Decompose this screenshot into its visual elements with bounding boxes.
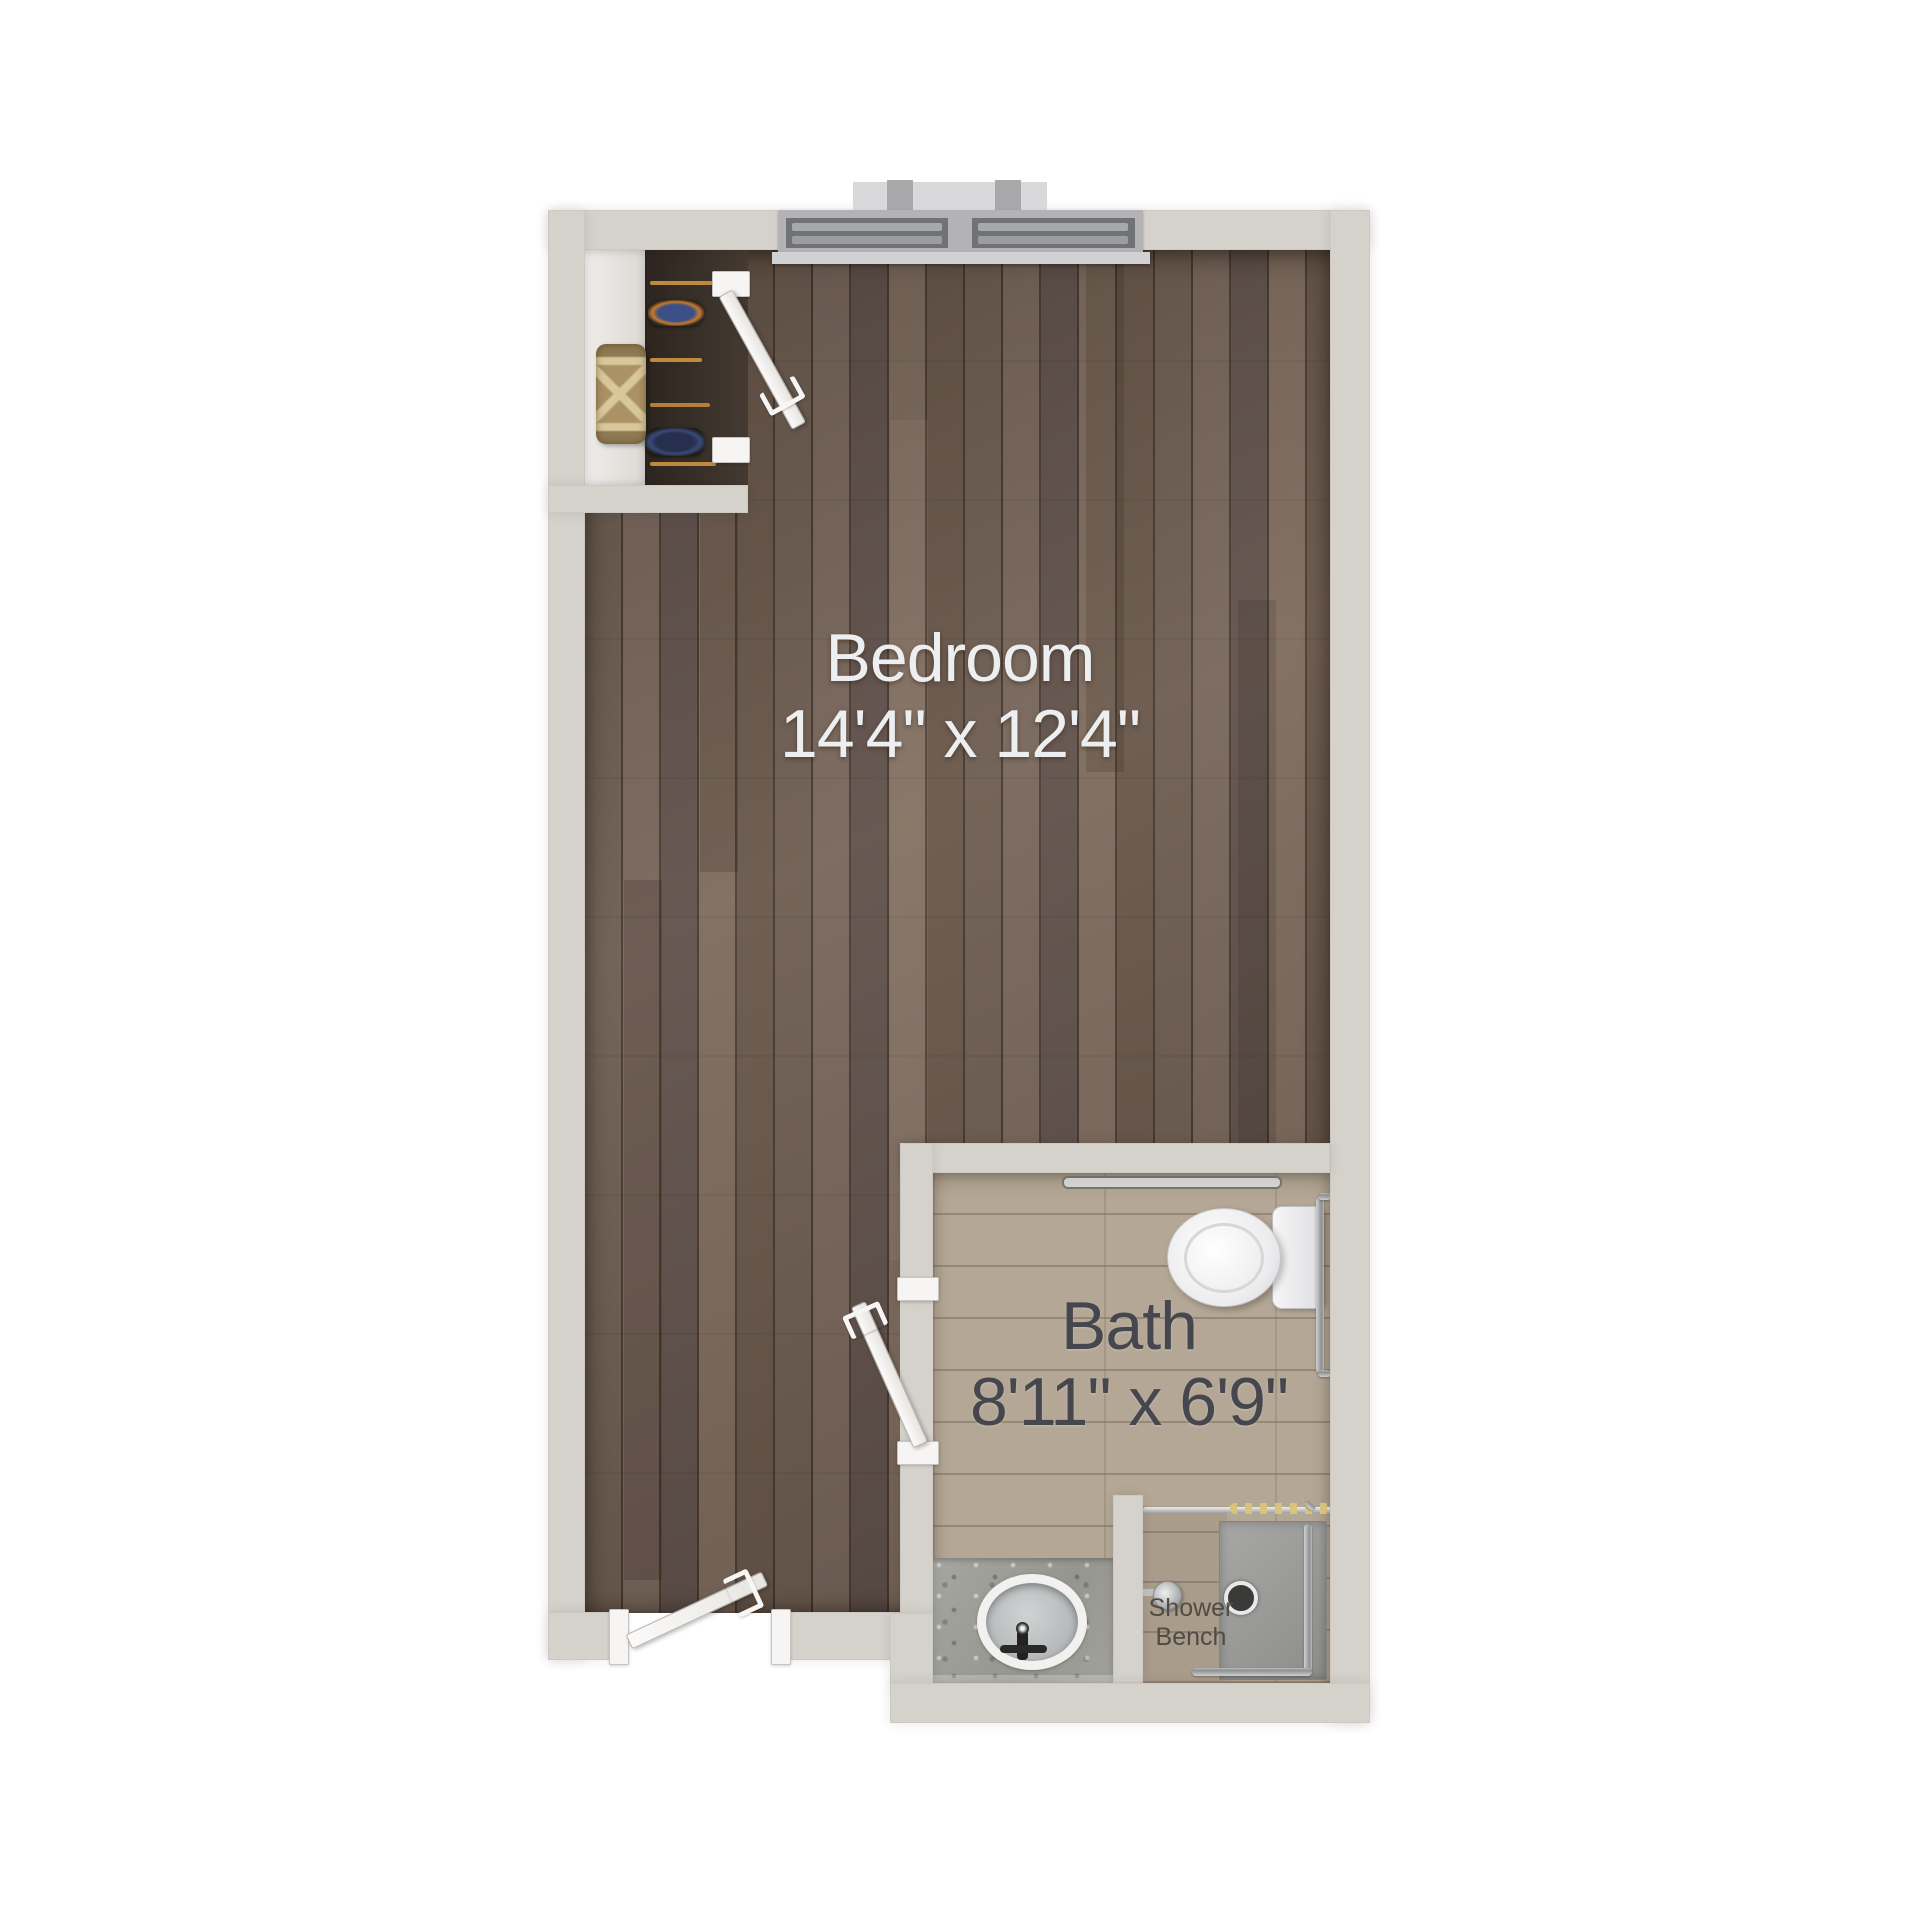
sink-faucet-handles <box>1000 1645 1047 1653</box>
closet-hanger-rod <box>650 403 710 407</box>
closet-hanger-rod <box>650 281 714 285</box>
window-glass-bar <box>792 223 942 231</box>
shower-grab-bar-horizontal <box>1192 1668 1312 1676</box>
window-frame-tab <box>995 180 1021 214</box>
window-sill <box>772 252 1150 264</box>
window <box>778 210 1143 256</box>
closet-hanger-rod <box>650 358 702 362</box>
bedroom-bottom-wall-right <box>788 1612 902 1660</box>
window-glass-bar <box>792 236 942 244</box>
toilet-seat-ring <box>1184 1223 1264 1293</box>
bath-label-block: Bath 8'11" x 6'9" <box>928 1288 1330 1440</box>
shower-bench-label-line1: Shower <box>1138 1594 1244 1623</box>
towel-bar <box>1062 1176 1282 1189</box>
shower-partition-wall <box>1113 1495 1143 1683</box>
window-glass-bar <box>978 223 1128 231</box>
bath-left-wall-bottom <box>890 1613 933 1688</box>
shower-bench-label-block: Shower Bench <box>1138 1594 1244 1652</box>
bath-top-wall <box>900 1143 1330 1173</box>
closet-bottom-wall <box>548 485 748 513</box>
bedroom-room-dimensions: 14'4" x 12'4" <box>610 696 1310 772</box>
bath-bottom-wall <box>890 1683 1370 1723</box>
window-frame-tab <box>887 180 913 214</box>
window-glass-bar <box>978 236 1128 244</box>
shower-bench-label-line2: Bench <box>1138 1623 1244 1652</box>
bedroom-bottom-wall-left <box>548 1612 610 1660</box>
bath-left-wall-upper <box>900 1143 933 1299</box>
bath-room-dimensions: 8'11" x 6'9" <box>928 1364 1330 1440</box>
bedroom-label-block: Bedroom 14'4" x 12'4" <box>610 620 1310 772</box>
closet-hanger-rod <box>650 462 716 466</box>
closet-shoes <box>645 428 705 456</box>
sink-faucet-spout <box>1016 1622 1029 1635</box>
window-mullion <box>948 218 972 248</box>
shower-grab-bar-vertical <box>1304 1524 1312 1672</box>
wall-left <box>548 210 585 1660</box>
wall-right <box>1330 210 1370 1723</box>
floor-plan-canvas: Bedroom 14'4" x 12'4" Bath 8'11" x 6'9" … <box>0 0 1920 1920</box>
bedroom-room-name: Bedroom <box>610 620 1310 696</box>
closet-doorway-jamb-bottom <box>712 437 750 463</box>
closet-rug-roll <box>596 344 646 444</box>
entry-doorway-jamb-right <box>771 1609 791 1665</box>
closet-shoes <box>648 300 704 326</box>
sink <box>977 1574 1087 1670</box>
bath-room-name: Bath <box>928 1288 1330 1364</box>
bath-left-wall-lower <box>900 1441 933 1616</box>
